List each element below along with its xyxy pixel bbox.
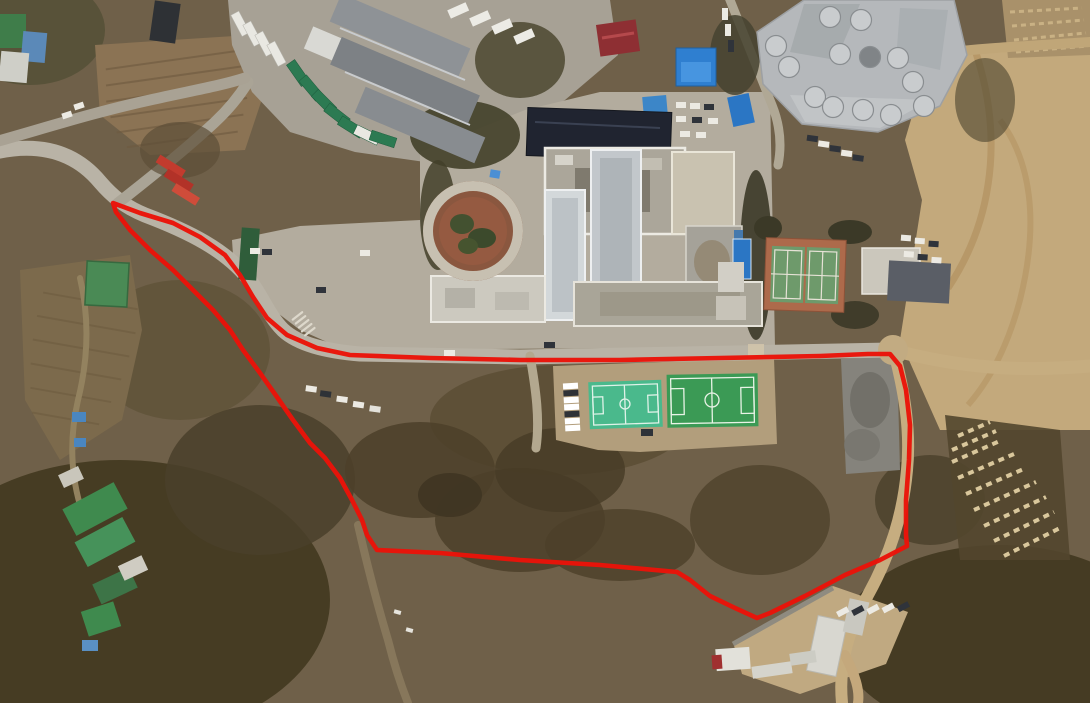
car bbox=[915, 238, 925, 245]
car bbox=[250, 248, 260, 254]
forest-blob bbox=[165, 405, 355, 555]
car bbox=[928, 241, 938, 248]
tree-clump bbox=[754, 216, 782, 240]
white-building-small bbox=[716, 296, 746, 320]
car bbox=[725, 24, 731, 36]
soccer-field bbox=[667, 373, 759, 428]
school-east-block bbox=[672, 152, 734, 234]
forest-blob bbox=[690, 465, 830, 575]
white-building-small bbox=[718, 262, 744, 292]
playground-tree bbox=[458, 238, 478, 254]
car bbox=[564, 404, 579, 411]
white-shed bbox=[0, 51, 29, 83]
futsal-court bbox=[588, 380, 663, 430]
satellite-image bbox=[0, 0, 1090, 703]
tennis-court bbox=[764, 238, 846, 313]
storage-tank-dark bbox=[860, 47, 881, 68]
greenhouse bbox=[85, 261, 129, 307]
tree-clump bbox=[955, 58, 1015, 142]
car bbox=[563, 383, 578, 390]
storage-tank bbox=[766, 36, 787, 57]
storage-tank bbox=[888, 48, 909, 69]
roof-unit bbox=[640, 158, 662, 170]
blue-bin bbox=[82, 640, 98, 651]
green-roof-shed bbox=[0, 14, 26, 48]
car bbox=[931, 257, 941, 264]
storage-tank bbox=[914, 96, 935, 117]
sw-roof-unit bbox=[495, 292, 529, 310]
car bbox=[901, 235, 911, 242]
terrace-ground bbox=[945, 415, 1070, 560]
car bbox=[692, 117, 702, 123]
car bbox=[444, 350, 455, 356]
blue-roof-upper-tier bbox=[681, 62, 711, 82]
storage-tank bbox=[853, 100, 874, 121]
car bbox=[565, 425, 580, 432]
sw-roof-unit bbox=[445, 288, 475, 308]
tree-clump bbox=[710, 15, 760, 95]
car bbox=[641, 429, 653, 436]
car bbox=[696, 132, 706, 138]
car bbox=[708, 118, 718, 124]
storage-tank bbox=[830, 44, 851, 65]
blue-bin bbox=[72, 412, 86, 422]
car bbox=[676, 116, 686, 122]
car bbox=[728, 40, 734, 52]
play-equipment-blue bbox=[489, 169, 500, 179]
storage-tank bbox=[851, 10, 872, 31]
forest-blob bbox=[418, 473, 482, 517]
car bbox=[704, 104, 714, 110]
roof-unit bbox=[555, 155, 573, 165]
dark-building bbox=[149, 0, 180, 43]
court-stain bbox=[844, 429, 880, 461]
car bbox=[316, 287, 326, 293]
court-stain bbox=[850, 372, 890, 428]
car bbox=[690, 103, 700, 109]
car bbox=[360, 250, 370, 256]
car bbox=[262, 249, 272, 255]
car bbox=[676, 102, 686, 108]
blue-bin bbox=[74, 438, 86, 447]
car bbox=[722, 8, 728, 20]
car bbox=[917, 254, 927, 261]
road-patch bbox=[748, 344, 764, 356]
car bbox=[680, 131, 690, 137]
car bbox=[564, 397, 579, 404]
aerial-photo-canvas bbox=[0, 0, 1090, 703]
car bbox=[564, 411, 579, 418]
truck-cab-red bbox=[712, 655, 723, 670]
car bbox=[544, 342, 555, 348]
storage-tank bbox=[820, 7, 841, 28]
dark-roof-building-east bbox=[887, 260, 951, 303]
storage-tank bbox=[779, 57, 800, 78]
storage-tank bbox=[881, 105, 902, 126]
car bbox=[563, 390, 578, 397]
car bbox=[904, 251, 914, 258]
storage-tank bbox=[823, 97, 844, 118]
tree-clump bbox=[475, 22, 565, 98]
car bbox=[565, 418, 580, 425]
playground-tree bbox=[450, 214, 474, 234]
storage-tank bbox=[903, 72, 924, 93]
